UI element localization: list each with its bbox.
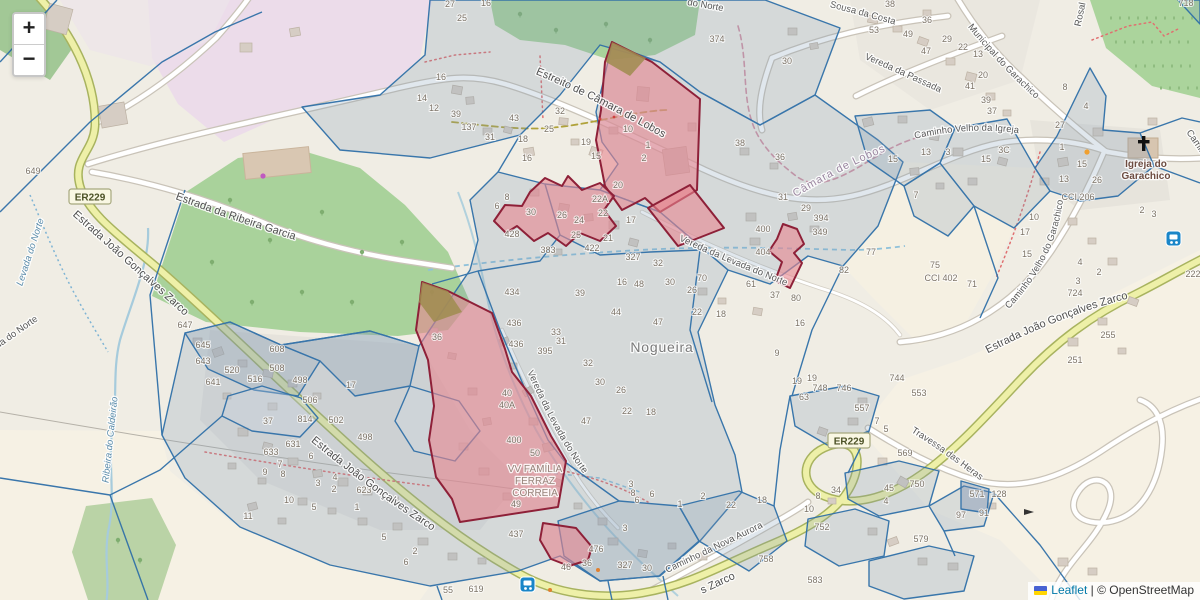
- house-number: 27: [445, 0, 455, 9]
- house-number: 619: [468, 584, 483, 594]
- house-number: 30: [595, 377, 605, 387]
- house-number: 251: [1067, 355, 1082, 365]
- house-number: 649: [25, 166, 40, 176]
- house-number: 571: [969, 489, 984, 499]
- house-number: 3: [315, 478, 320, 488]
- house-number: 8: [815, 491, 820, 501]
- house-number: 4: [332, 472, 337, 482]
- house-number: 36: [922, 15, 932, 25]
- house-number: 77: [866, 247, 876, 257]
- house-number: 400: [755, 224, 770, 234]
- house-number: 31: [485, 132, 495, 142]
- attribution-bar: Leaflet | © OpenStreetMap: [1028, 582, 1200, 600]
- house-number: CCI 402: [924, 273, 957, 283]
- house-number: 6: [494, 201, 499, 211]
- house-number: 17: [1020, 227, 1030, 237]
- house-number: 15: [591, 151, 601, 161]
- house-number: 47: [581, 416, 591, 426]
- house-number: 16: [436, 72, 446, 82]
- house-number: 746: [836, 383, 851, 393]
- house-number: 3C: [998, 145, 1010, 155]
- house-number: 44: [611, 307, 621, 317]
- house-number: 553: [911, 388, 926, 398]
- house-number: 32: [583, 358, 593, 368]
- house-number: 395: [537, 346, 552, 356]
- house-number: 24: [574, 215, 584, 225]
- house-number: 15: [888, 154, 898, 164]
- house-number: 32: [653, 258, 663, 268]
- house-number: 8: [1062, 82, 1067, 92]
- house-number: 7: [913, 190, 918, 200]
- house-number: 19: [807, 373, 817, 383]
- house-number: 4: [1077, 257, 1082, 267]
- house-number: 39: [981, 95, 991, 105]
- house-number: 37: [263, 416, 273, 426]
- house-number: 21: [603, 233, 613, 243]
- house-number: 29: [942, 34, 952, 44]
- house-number: 633: [263, 447, 278, 457]
- house-number: 400: [506, 435, 521, 445]
- house-number: 583: [807, 575, 822, 585]
- house-number: 45: [884, 483, 894, 493]
- house-number: 404: [755, 247, 770, 257]
- place-label: Nogueira: [630, 339, 693, 355]
- poi-label: Garachico: [1122, 171, 1171, 182]
- levada-dot: [599, 118, 602, 121]
- svg-text:ER229: ER229: [834, 437, 865, 448]
- poi-dot: [260, 173, 265, 178]
- house-number: 6: [634, 495, 639, 505]
- house-number: 36: [582, 558, 592, 568]
- house-number: 31: [778, 192, 788, 202]
- house-number: 3: [945, 147, 950, 157]
- house-number: 41: [965, 81, 975, 91]
- house-number: 22A: [592, 194, 608, 204]
- house-number: 4: [883, 496, 888, 506]
- bus-stop-icon: [520, 577, 535, 592]
- house-number: 16: [481, 0, 491, 8]
- house-number: 7: [874, 416, 879, 426]
- osm-credit: © OpenStreetMap: [1097, 583, 1194, 597]
- house-number: 63: [799, 392, 809, 402]
- ukraine-flag-icon: [1034, 586, 1047, 595]
- house-number: 18: [757, 495, 767, 505]
- house-number: 1: [354, 502, 359, 512]
- house-number: 718: [1178, 0, 1193, 8]
- house-number: 53: [869, 25, 879, 35]
- house-number: 436: [506, 318, 521, 328]
- house-number: 47: [921, 46, 931, 56]
- house-number: 643: [195, 356, 210, 366]
- house-number: 34: [831, 485, 841, 495]
- house-number: 17: [346, 380, 356, 390]
- house-number: 43: [509, 113, 519, 123]
- house-number: 641: [205, 377, 220, 387]
- house-number: 16: [795, 318, 805, 328]
- house-number: 744: [889, 373, 904, 383]
- house-number: 18: [646, 407, 656, 417]
- house-number: 15: [1022, 249, 1032, 259]
- zoom-control: + −: [12, 12, 46, 77]
- leaflet-link[interactable]: Leaflet: [1051, 583, 1087, 597]
- house-number: 608: [269, 344, 284, 354]
- house-number: 8: [504, 192, 509, 202]
- house-number: 26: [1092, 175, 1102, 185]
- house-number: 516: [247, 374, 262, 384]
- crossing-dot: [1084, 149, 1089, 154]
- house-number: 645: [195, 340, 210, 350]
- house-number: 520: [224, 365, 239, 375]
- house-number: 3: [1151, 209, 1156, 219]
- house-number: 26: [616, 385, 626, 395]
- house-number: 7: [277, 459, 282, 469]
- zoom-in-button[interactable]: +: [14, 14, 44, 44]
- house-number: 17: [626, 215, 636, 225]
- site-label: CORREIA: [512, 488, 558, 499]
- attribution-separator: |: [1087, 583, 1097, 597]
- house-number: 19: [792, 376, 802, 386]
- house-number: 80: [791, 293, 801, 303]
- house-number: 26: [687, 285, 697, 295]
- house-number: 25: [544, 124, 554, 134]
- house-number: 2: [331, 484, 336, 494]
- map-canvas: 2716251614123943137311816322519151012202…: [0, 0, 1200, 600]
- house-number: 82: [839, 265, 849, 275]
- house-number: 36: [432, 332, 442, 342]
- house-number: 1: [677, 499, 682, 509]
- house-number: 3: [622, 523, 627, 533]
- house-number: 374: [709, 34, 724, 44]
- house-number: 16: [617, 277, 627, 287]
- house-number: 22: [692, 307, 702, 317]
- house-number: 29: [801, 203, 811, 213]
- house-number: 349: [812, 227, 827, 237]
- house-number: 19: [581, 137, 591, 147]
- house-number: 71: [967, 279, 977, 289]
- house-number: 2: [641, 153, 646, 163]
- house-number: 39: [451, 109, 461, 119]
- crossing-dot: [548, 588, 552, 592]
- house-number: 97: [956, 510, 966, 520]
- house-number: 13: [921, 147, 931, 157]
- house-number: CCI 206: [1061, 192, 1094, 202]
- house-number: 55: [443, 585, 453, 595]
- house-number: 30: [782, 56, 792, 66]
- house-number: 25: [457, 13, 467, 23]
- bus-stop-icon: [1166, 231, 1181, 246]
- house-number: 394: [813, 213, 828, 223]
- house-number: 5: [381, 532, 386, 542]
- house-number: 22: [622, 406, 632, 416]
- site-label: FERRAZ: [515, 476, 555, 487]
- house-number: 327: [625, 252, 640, 262]
- house-number: 27: [1055, 120, 1065, 130]
- house-number: 40A: [499, 400, 515, 410]
- house-number: 22: [598, 208, 608, 218]
- house-number: 30: [665, 277, 675, 287]
- map-viewport[interactable]: 2716251614123943137311816322519151012202…: [0, 0, 1200, 600]
- house-number: 13: [973, 49, 983, 59]
- house-number: 75: [930, 260, 940, 270]
- house-number: 2: [1139, 205, 1144, 215]
- levada-dot: [613, 116, 616, 119]
- house-number: 476: [588, 544, 603, 554]
- house-number: 5: [311, 502, 316, 512]
- house-number: 255: [1100, 330, 1115, 340]
- house-number: 724: [1067, 288, 1082, 298]
- house-number: 38: [735, 138, 745, 148]
- house-number: 10: [284, 495, 294, 505]
- poi-label: Igreja do: [1125, 159, 1167, 170]
- house-number: 434: [504, 287, 519, 297]
- house-number: 16: [522, 153, 532, 163]
- house-number: 6: [308, 451, 313, 461]
- crossing-dot: [596, 568, 600, 572]
- house-number: 437: [508, 529, 523, 539]
- house-number: 91: [979, 508, 989, 518]
- house-number: 2: [700, 491, 705, 501]
- house-number: 22: [958, 42, 968, 52]
- house-number: 25: [571, 230, 581, 240]
- house-number: 4: [1083, 101, 1088, 111]
- house-number: 39: [575, 288, 585, 298]
- house-number: 557: [854, 403, 869, 413]
- house-number: 30: [526, 207, 536, 217]
- house-number: 1: [645, 140, 650, 150]
- house-number: 30: [642, 563, 652, 573]
- house-number: 36: [775, 152, 785, 162]
- house-number: 9: [262, 467, 267, 477]
- house-number: 3: [1075, 276, 1080, 286]
- house-number: 40: [502, 388, 512, 398]
- house-number: 8: [280, 469, 285, 479]
- house-number: 10: [1029, 212, 1039, 222]
- house-number: 20: [978, 70, 988, 80]
- svg-text:ER229: ER229: [75, 193, 106, 204]
- house-number: 70: [697, 273, 707, 283]
- house-number: 22: [726, 500, 736, 510]
- house-number: 37: [987, 106, 997, 116]
- house-number: 498: [292, 375, 307, 385]
- house-number: 2: [412, 546, 417, 556]
- house-number: 647: [177, 320, 192, 330]
- house-number: 49: [903, 29, 913, 39]
- house-number: 48: [634, 279, 644, 289]
- house-number: 6: [403, 557, 408, 567]
- house-number: 128: [991, 489, 1006, 499]
- route-shield: ER229: [69, 189, 111, 204]
- house-number: 508: [269, 363, 284, 373]
- zoom-out-button[interactable]: −: [14, 44, 44, 75]
- house-number: 13: [1059, 174, 1069, 184]
- house-number: 32: [555, 106, 565, 116]
- house-number: 15: [981, 154, 991, 164]
- house-number: 748: [812, 383, 827, 393]
- house-number: 9: [774, 348, 779, 358]
- house-number: 18: [716, 309, 726, 319]
- house-number: 10: [623, 124, 633, 134]
- house-number: 31: [556, 336, 566, 346]
- house-number: 579: [913, 534, 928, 544]
- house-number: 49: [511, 499, 521, 509]
- house-number: 47: [653, 317, 663, 327]
- house-number: 11: [243, 511, 252, 521]
- house-number: 506: [302, 395, 317, 405]
- house-number: 5: [883, 424, 888, 434]
- house-number: 1: [1059, 142, 1064, 152]
- house-number: 631: [285, 439, 300, 449]
- site-label: VV FAMÍLIA: [508, 462, 563, 475]
- house-number: 37: [770, 290, 780, 300]
- house-number: 46: [561, 562, 571, 572]
- house-number: 569: [897, 448, 912, 458]
- house-number: 327: [617, 560, 632, 570]
- house-number: 758: [758, 554, 773, 564]
- house-number: 10: [804, 504, 814, 514]
- house-number: 26: [557, 210, 567, 220]
- house-number: 222: [1185, 269, 1200, 279]
- house-number: 14: [417, 93, 427, 103]
- house-number: 38: [885, 0, 895, 9]
- route-shield: ER229: [828, 433, 870, 448]
- house-number: 750: [909, 479, 924, 489]
- house-number: 12: [429, 103, 439, 113]
- house-number: 18: [518, 134, 528, 144]
- house-number: 15: [1077, 159, 1087, 169]
- house-number: 383: [540, 245, 555, 255]
- house-number: 498: [357, 432, 372, 442]
- house-number: 6: [649, 489, 654, 499]
- house-number: 436: [508, 339, 523, 349]
- house-number: 20: [613, 180, 623, 190]
- house-number: 137: [461, 122, 476, 132]
- house-number: 752: [814, 522, 829, 532]
- house-number: 428: [504, 229, 519, 239]
- house-number: 2: [1096, 267, 1101, 277]
- house-number: 502: [328, 415, 343, 425]
- house-number: 422: [584, 243, 599, 253]
- house-number: 814: [297, 414, 312, 424]
- house-number: 50: [530, 448, 540, 458]
- house-number: 61: [746, 279, 756, 289]
